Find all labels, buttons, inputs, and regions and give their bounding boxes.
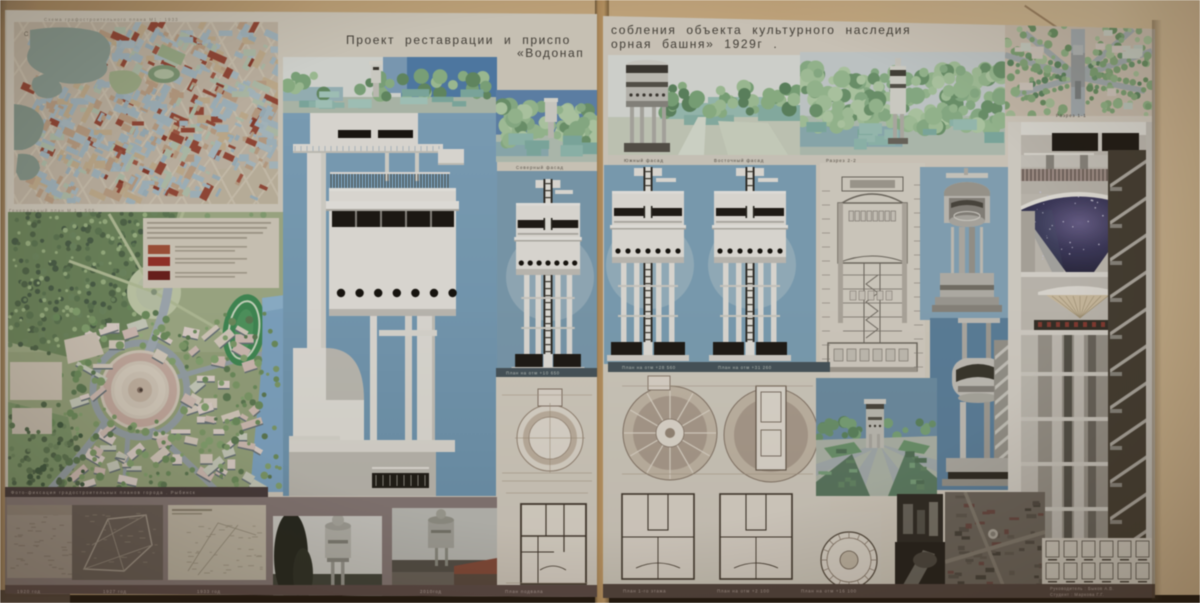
svg-text:Разрез 1-1: Разрез 1-1 <box>1056 113 1087 118</box>
svg-text:План на отм +28 560: План на отм +28 560 <box>622 365 676 370</box>
svg-text:План на отм +10 650: План на отм +10 650 <box>506 371 560 376</box>
svg-text:Фото-фиксация градостроительн: Фото-фиксация градостроительных планов г… <box>11 490 196 495</box>
svg-text:Восточный фасад: Восточный фасад <box>714 158 764 163</box>
svg-text:План на отм +16 100: План на отм +16 100 <box>801 589 857 594</box>
svg-text:1920 год: 1920 год <box>17 589 41 594</box>
svg-text:План 1-го этажа: План 1-го этажа <box>623 589 666 594</box>
svg-text:План подвала: План подвала <box>505 589 543 594</box>
svg-text:1933 год: 1933 год <box>197 589 221 594</box>
svg-text:План на отм +31 260: План на отм +31 260 <box>718 365 772 370</box>
svg-text:2010год: 2010год <box>420 589 442 594</box>
svg-text:Северный фасад: Северный фасад <box>516 165 564 170</box>
svg-text:Студент : Маркова Г.Г.: Студент : Маркова Г.Г. <box>1050 592 1104 597</box>
svg-text:Руководитель : Быков А.В.: Руководитель : Быков А.В. <box>1050 586 1114 591</box>
svg-text:1927 год: 1927 год <box>103 589 127 594</box>
svg-text:C: C <box>24 32 29 38</box>
svg-text:Южный фасад: Южный фасад <box>624 158 664 163</box>
svg-text:План на отм +2 100: План на отм +2 100 <box>717 589 770 594</box>
